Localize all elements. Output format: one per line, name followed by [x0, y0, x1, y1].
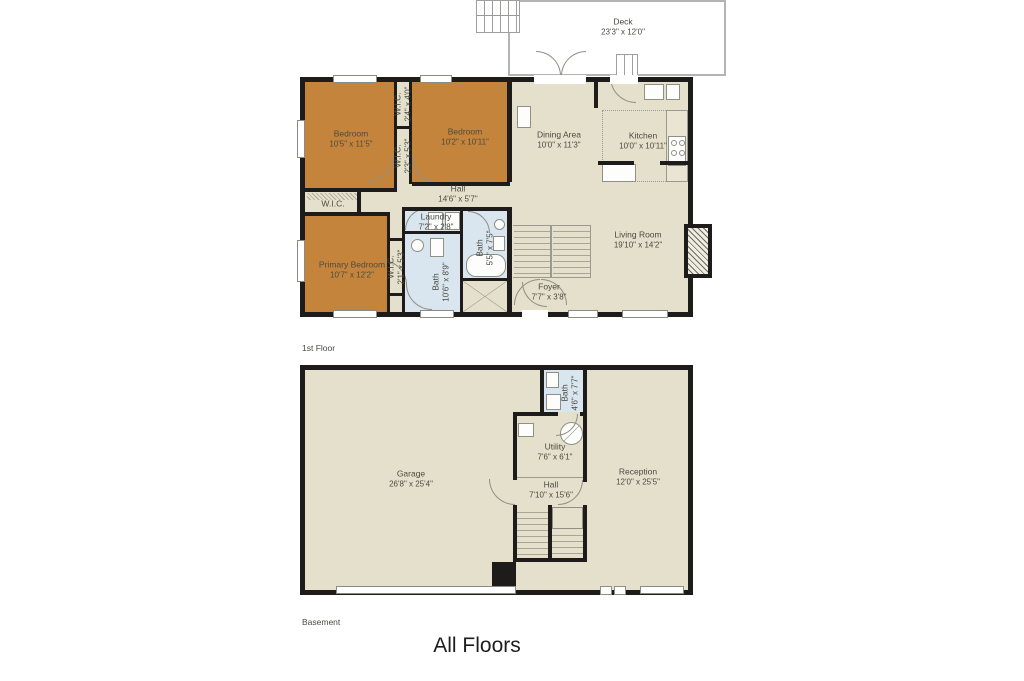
room-name: W.I.C. — [321, 199, 344, 210]
room-dims: 7'10" x 15'6" — [529, 490, 573, 500]
wall — [583, 505, 587, 562]
room-label-primary-bedroom: Primary Bedroom 10'7" x 12'2" — [319, 260, 385, 281]
page-title: All Floors — [433, 634, 521, 658]
wall — [660, 161, 693, 165]
toilet — [430, 238, 444, 257]
room-label-bedroom-2: Bedroom 10'2" x 10'11" — [441, 127, 489, 148]
room-dims: 7'2" x 2'8" — [419, 222, 454, 232]
room-label-dining: Dining Area 10'0" x 11'3" — [537, 130, 581, 151]
burner — [679, 150, 685, 156]
room-dims: 5'5" x 7'5" — [485, 231, 495, 266]
wall — [598, 161, 634, 165]
room-name: W.I.C. — [393, 87, 404, 122]
wall — [513, 505, 517, 562]
hall-edge-line — [516, 477, 584, 478]
window-box — [600, 586, 612, 595]
room-name: Dining Area — [537, 130, 581, 141]
room-dims: 2'3" x 5'3" — [403, 139, 413, 174]
room-name: Bath — [431, 262, 442, 301]
deck-stairs-line — [476, 15, 520, 16]
wall — [460, 207, 463, 312]
window — [420, 310, 454, 318]
room-dims: 10'0" x 10'11" — [619, 141, 667, 151]
room-label-deck: Deck 23'3" x 12'0" — [601, 17, 645, 38]
room-dims: 19'10" x 14'2" — [614, 240, 662, 250]
wall — [390, 238, 404, 241]
wall — [390, 293, 404, 296]
room-name: Kitchen — [619, 131, 667, 142]
basement-stairs-right-run — [552, 530, 583, 558]
wall — [548, 505, 552, 560]
room-label-wic-mid: W.I.C. 2'3" x 5'3" — [393, 139, 414, 174]
floor-plan-canvas: Deck 23'3" x 12'0" Bedroom 10'5" x 11'5"… — [0, 0, 1024, 681]
room-label-bedroom-1: Bedroom 10'5" x 11'5" — [329, 129, 372, 150]
room-label-garage: Garage 26'8" x 25'4" — [389, 469, 433, 490]
sink — [494, 219, 505, 230]
room-dims: 10'7" x 12'2" — [319, 270, 385, 280]
room-dims: 4'6" x 7'7" — [570, 376, 580, 411]
window — [420, 75, 452, 83]
stairs-up-left-run — [514, 226, 550, 277]
burner — [679, 140, 685, 146]
room-label-laundry: Laundry 7'2" x 2'8" — [419, 212, 454, 233]
kitchen-counter-return — [602, 164, 636, 182]
room-name: W.I.C. — [393, 139, 404, 174]
closet-cross — [463, 281, 507, 312]
room-dims: 10'6" x 8'9" — [441, 262, 451, 301]
stairs-edge — [513, 277, 590, 278]
room-dims: 2'4" x 4'0" — [403, 87, 413, 122]
wall — [540, 370, 544, 414]
deck-door-opening — [610, 75, 638, 84]
dining-side-table — [517, 106, 531, 128]
room-dims: 2'1" x 5'3" — [396, 250, 406, 285]
room-label-bath-large: Bath 10'6" x 8'9" — [431, 262, 452, 301]
window — [640, 586, 684, 594]
french-door-opening — [534, 75, 586, 84]
entry-opening — [522, 310, 548, 318]
room-name: Bedroom — [441, 127, 489, 138]
basement-stairs-landing — [552, 507, 583, 529]
room-name: Primary Bedroom — [319, 260, 385, 271]
window — [568, 310, 598, 318]
window — [297, 240, 305, 282]
garage-door-strip — [336, 586, 516, 594]
wall — [513, 412, 558, 416]
room-dims: 10'5" x 11'5" — [329, 139, 372, 149]
stairs-up-right-run — [553, 226, 590, 277]
window — [333, 75, 377, 83]
floor-caption-first: 1st Floor — [302, 343, 335, 353]
wall — [460, 278, 507, 281]
deck-stairs — [476, 0, 520, 33]
room-name: Foyer — [532, 282, 567, 293]
room-dims: 23'3" x 12'0" — [601, 27, 645, 37]
room-label-foyer: Foyer 7'7" x 3'8" — [532, 282, 567, 303]
stairs-edge — [590, 225, 591, 278]
room-name: Laundry — [419, 212, 454, 223]
room-dims: 7'7" x 3'8" — [532, 292, 567, 302]
window-box — [614, 586, 626, 595]
stairs-rail — [550, 226, 552, 277]
room-name: Reception — [616, 467, 660, 478]
room-dims: 10'2" x 10'11" — [441, 137, 489, 147]
room-label-wic-left: W.I.C. — [321, 199, 344, 210]
room-name: Hall — [529, 480, 573, 491]
fireplace — [684, 224, 712, 278]
room-label-wic-top: W.I.C. 2'4" x 4'0" — [393, 87, 414, 122]
room-label-bath-small: Bath 5'5" x 7'5" — [475, 231, 496, 266]
window — [297, 120, 305, 158]
room-label-kitchen: Kitchen 10'0" x 10'11" — [619, 131, 667, 152]
wall — [402, 207, 507, 211]
sink — [411, 239, 424, 252]
room-label-basement-bath: Bath 4'6" x 7'7" — [560, 376, 581, 411]
utility-box — [518, 423, 534, 437]
room-dims: 7'6" x 6'1" — [538, 452, 573, 462]
room-name: Bath — [475, 231, 486, 266]
kitchen-cabinet — [666, 84, 680, 100]
wall — [583, 370, 587, 482]
room-name: Garage — [389, 469, 433, 480]
window — [622, 310, 668, 318]
wall — [394, 126, 412, 129]
room-name: Hall — [438, 184, 477, 195]
kitchen-sink — [644, 84, 664, 100]
room-dims: 14'6" x 5'7" — [438, 194, 477, 204]
burner — [671, 150, 677, 156]
room-name: Bath — [560, 376, 571, 411]
floor-caption-basement: Basement — [302, 617, 340, 627]
room-label-utility: Utility 7'6" x 6'1" — [538, 442, 573, 463]
wall — [305, 212, 390, 216]
wall — [305, 188, 397, 192]
room-name: W.I.C. — [386, 250, 397, 285]
room-dims: 26'8" x 25'4" — [389, 479, 433, 489]
basement-stairs-left-run — [517, 507, 548, 558]
toilet — [546, 372, 559, 388]
wall — [507, 207, 512, 312]
room-name: Utility — [538, 442, 573, 453]
room-label-reception: Reception 12'0" x 25'5" — [616, 467, 660, 488]
wall — [594, 82, 598, 108]
wall — [513, 412, 517, 480]
room-label-hall: Hall 14'6" x 5'7" — [438, 184, 477, 205]
wall — [507, 82, 512, 182]
room-label-basement-hall: Hall 7'10" x 15'6" — [529, 480, 573, 501]
room-dims: 12'0" x 25'5" — [616, 477, 660, 487]
room-dims: 10'0" x 11'3" — [537, 140, 581, 150]
burner — [671, 140, 677, 146]
window — [333, 310, 377, 318]
room-label-living-room: Living Room 19'10" x 14'2" — [614, 230, 662, 251]
room-name: Bedroom — [329, 129, 372, 140]
room-label-wic-primary: W.I.C. 2'1" x 5'3" — [386, 250, 407, 285]
deck-step — [616, 54, 638, 76]
stairs-edge — [513, 225, 590, 226]
room-name: Living Room — [614, 230, 662, 241]
room-name: Deck — [601, 17, 645, 28]
